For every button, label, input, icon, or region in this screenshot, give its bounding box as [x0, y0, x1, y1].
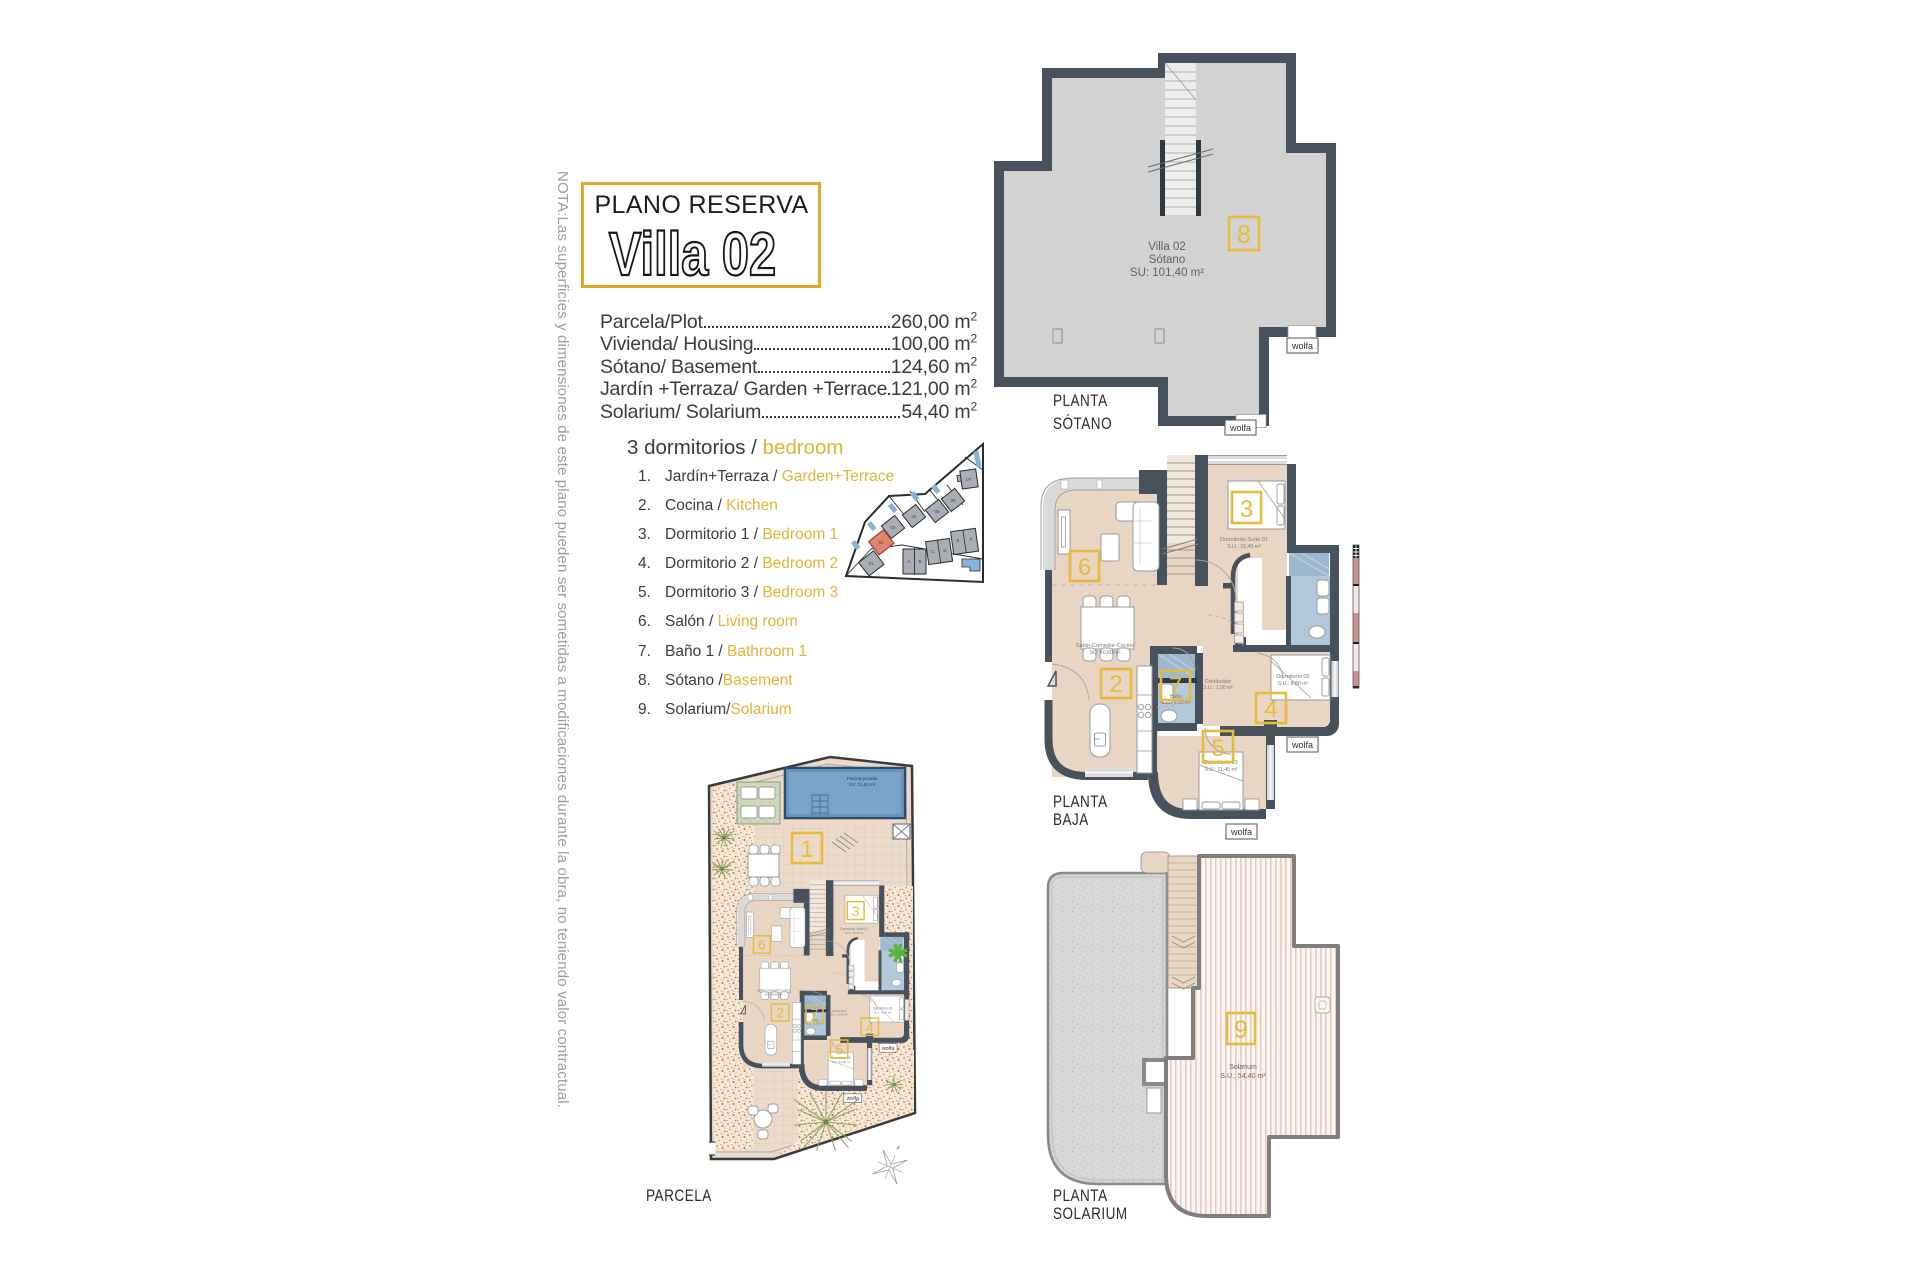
svg-text:06: 06 [950, 498, 956, 503]
svg-text:Sótano: Sótano [1149, 254, 1185, 266]
svg-text:F: F [970, 537, 973, 542]
svg-text:04: 04 [911, 514, 917, 519]
svg-text:S.U.: 54,40 m²: S.U.: 54,40 m² [1220, 1073, 1266, 1080]
svg-text:02: 02 [878, 540, 884, 545]
svg-text:SU: 21,00 m²: SU: 21,00 m² [849, 782, 876, 787]
svg-text:SU: 101,40 m²: SU: 101,40 m² [1130, 267, 1204, 279]
svg-text:A: A [907, 559, 910, 564]
svg-text:B: B [918, 559, 921, 564]
svg-text:wolfa: wolfa [1291, 341, 1313, 351]
svg-text:1: 1 [800, 836, 813, 863]
svg-text:wolfa: wolfa [1229, 423, 1251, 433]
svg-text:01: 01 [868, 561, 874, 566]
svg-text:Solarium: Solarium [1229, 1064, 1257, 1071]
svg-text:E: E [956, 538, 959, 543]
svg-text:05: 05 [934, 509, 940, 514]
svg-text:Piscina privada: Piscina privada [847, 776, 878, 781]
svg-text:03: 03 [890, 525, 896, 530]
svg-text:Villa 02: Villa 02 [1148, 241, 1186, 253]
svg-text:9: 9 [1234, 1016, 1248, 1044]
svg-text:8: 8 [1237, 221, 1251, 249]
svg-text:07: 07 [966, 477, 972, 482]
